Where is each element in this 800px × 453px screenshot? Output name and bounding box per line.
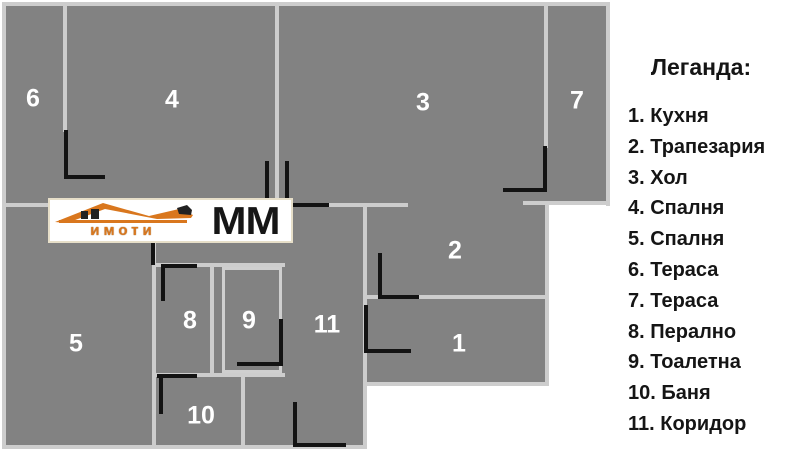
legend-title: Леганда: [618, 54, 784, 81]
legend-item-9: 9. Тоалетна [628, 347, 796, 378]
legend-item-6: 6. Тераса [628, 255, 796, 286]
door-opening-mark [378, 295, 419, 299]
legend-item-7: 7. Тераса [628, 286, 796, 317]
door-opening-mark [161, 264, 197, 268]
room-number-label-3: 3 [416, 91, 430, 116]
logo-mm-text: MM [203, 203, 288, 239]
legend: Леганда: 1. Кухня2. Трапезария3. Хол4. С… [618, 54, 796, 440]
room-number-label-7: 7 [570, 89, 584, 114]
door-opening-mark [237, 362, 283, 366]
wall-segment [326, 203, 408, 207]
door-opening-mark [159, 374, 163, 414]
legend-list: 1. Кухня2. Трапезария3. Хол4. Спалня5. С… [628, 101, 796, 440]
legend-item-4: 4. Спалня [628, 193, 796, 224]
wall-segment [2, 2, 610, 6]
plan-floor-area [4, 385, 365, 447]
legend-item-5: 5. Спалня [628, 224, 796, 255]
door-opening-mark [503, 188, 547, 192]
room-number-label-11: 11 [314, 313, 340, 338]
wall-segment [363, 382, 549, 386]
wall-segment [63, 4, 67, 132]
floorplan-screenshot: 1234567891011 имоти MM Леганда: 1. Кухня… [0, 0, 800, 453]
wall-segment [545, 201, 610, 205]
door-opening-mark [293, 443, 346, 447]
legend-item-11: 11. Коридор [628, 409, 796, 440]
legend-item-8: 8. Перално [628, 317, 796, 348]
agency-watermark-logo: имоти MM [48, 198, 293, 243]
wall-segment [152, 240, 156, 449]
wall-segment [2, 2, 6, 449]
legend-item-3: 3. Хол [628, 163, 796, 194]
door-opening-mark [364, 305, 368, 353]
door-opening-mark [293, 402, 297, 447]
wall-segment [210, 265, 214, 377]
wall-segment [2, 203, 52, 207]
door-opening-mark [64, 175, 105, 179]
legend-item-1: 1. Кухня [628, 101, 796, 132]
legend-item-10: 10. Баня [628, 378, 796, 409]
room-number-label-8: 8 [183, 309, 197, 334]
door-opening-mark [279, 319, 283, 366]
wall-segment [275, 4, 279, 207]
room-number-label-5: 5 [69, 332, 83, 357]
room-number-label-9: 9 [242, 309, 256, 334]
logo-brand-text: имоти [53, 223, 193, 239]
door-opening-mark [378, 253, 382, 299]
door-opening-mark [64, 130, 68, 179]
logo-house-graphic: имоти [53, 201, 203, 240]
room-number-label-6: 6 [26, 87, 40, 112]
room-number-label-2: 2 [448, 239, 462, 264]
wall-segment [241, 377, 245, 449]
door-opening-mark [151, 242, 155, 265]
door-opening-mark [161, 264, 165, 301]
wall-segment [544, 4, 548, 148]
door-opening-mark [364, 349, 411, 353]
room-number-label-1: 1 [452, 332, 466, 357]
door-opening-mark [291, 203, 329, 207]
floorplan: 1234567891011 имоти MM [0, 0, 620, 453]
legend-item-2: 2. Трапезария [628, 132, 796, 163]
wall-segment [523, 201, 549, 205]
door-opening-mark [543, 146, 547, 192]
wall-segment [606, 2, 610, 206]
room-number-label-4: 4 [165, 88, 179, 113]
roof-icon [53, 201, 201, 223]
wall-segment [363, 382, 367, 449]
room-number-label-10: 10 [187, 404, 215, 429]
door-opening-mark [157, 374, 197, 378]
